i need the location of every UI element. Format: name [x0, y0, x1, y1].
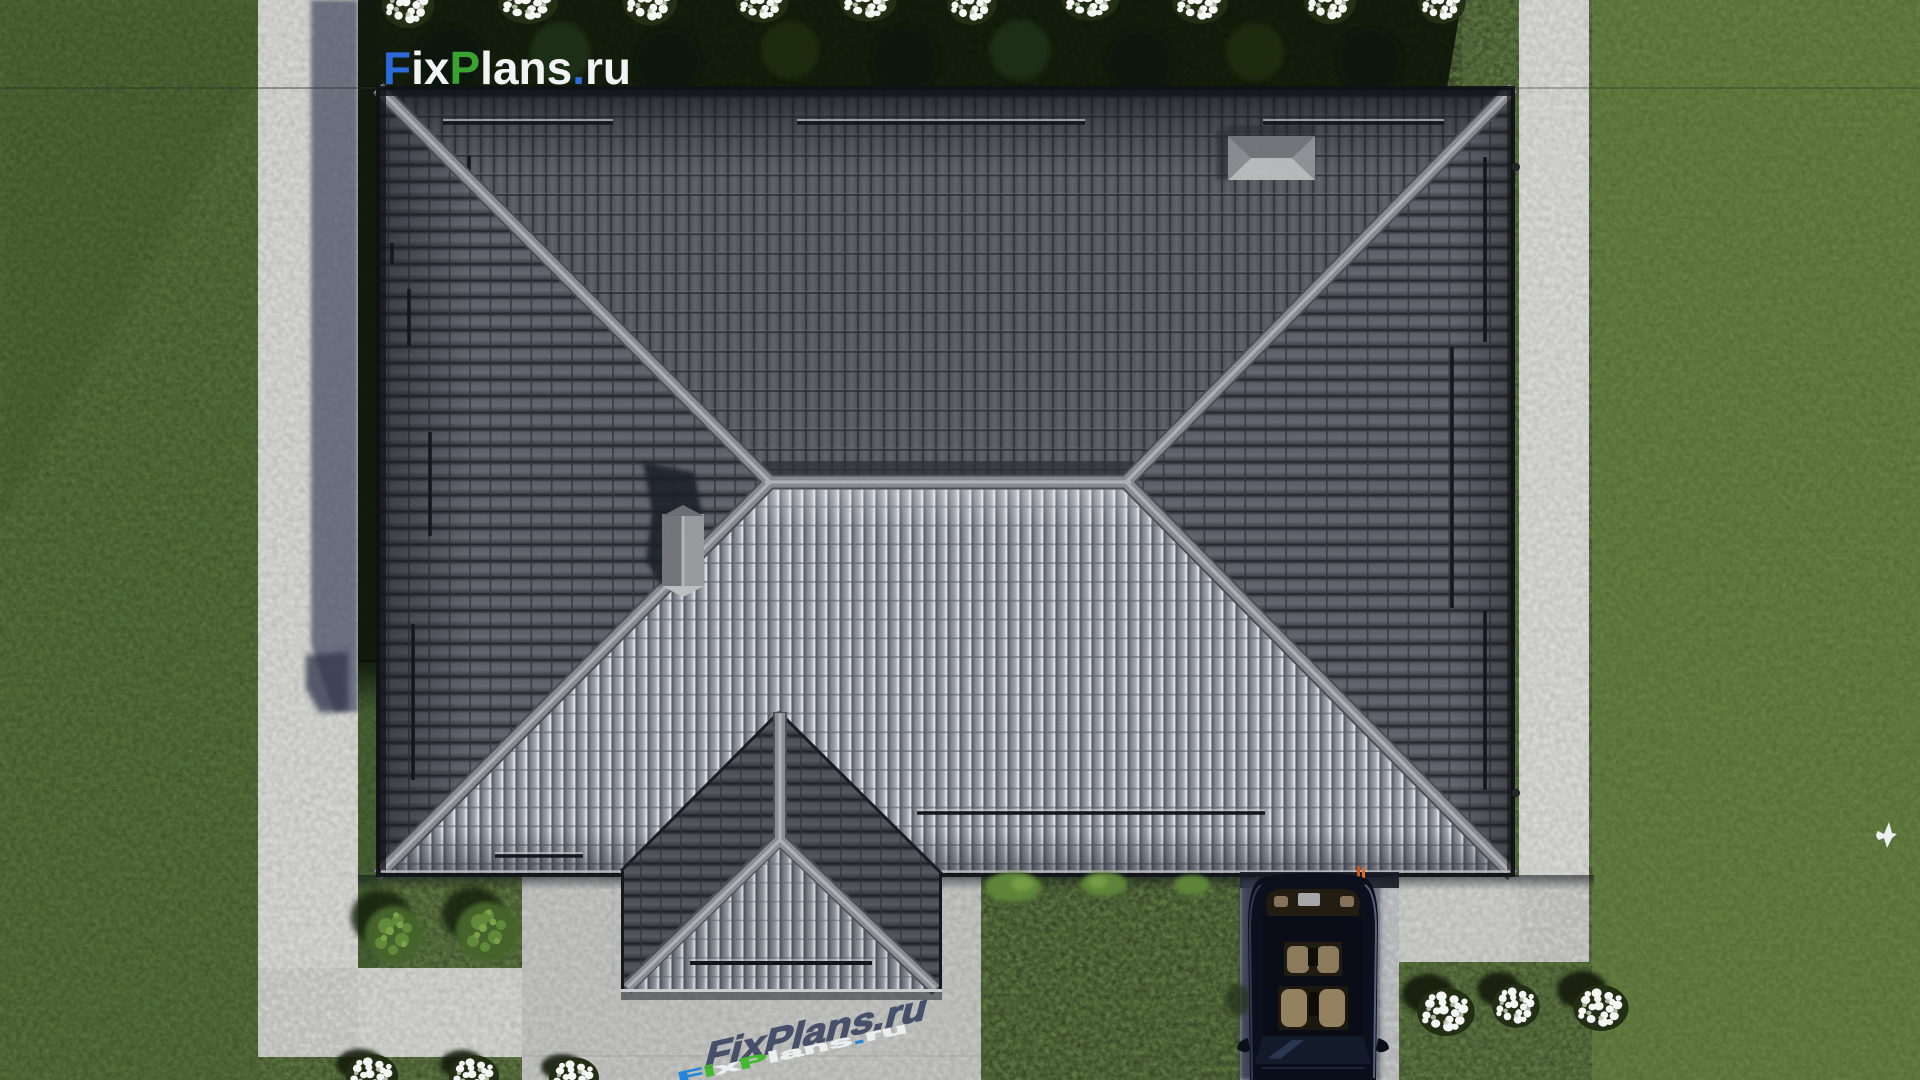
svg-text:FixPlans.ru: FixPlans.ru [383, 42, 631, 94]
